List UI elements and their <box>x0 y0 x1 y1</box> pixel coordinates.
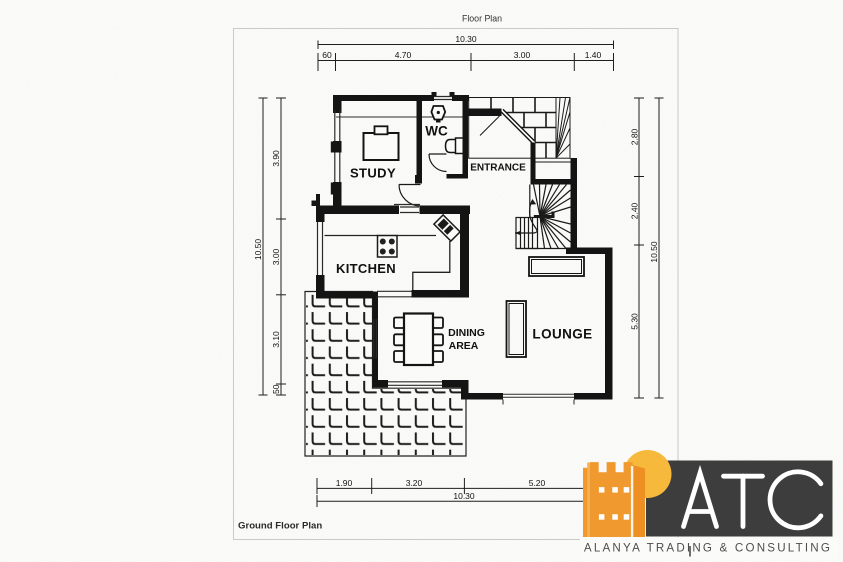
svg-text:4.70: 4.70 <box>395 50 412 60</box>
svg-text:10.30: 10.30 <box>453 491 475 501</box>
svg-text:3.00: 3.00 <box>271 248 281 265</box>
svg-text:1.90: 1.90 <box>336 478 353 488</box>
svg-text:10.30: 10.30 <box>455 34 477 44</box>
svg-text:5.30: 5.30 <box>630 313 640 330</box>
svg-text:5.20: 5.20 <box>529 478 546 488</box>
svg-text:Floor Plan: Floor Plan <box>462 14 502 24</box>
svg-text:2.40: 2.40 <box>630 202 640 219</box>
svg-text:ALANYA TRADING & CONSULTING: ALANYA TRADING & CONSULTING <box>584 542 832 555</box>
svg-text:WC: WC <box>425 124 448 139</box>
svg-text:ENTRANCE: ENTRANCE <box>470 163 526 174</box>
svg-text:Ground Floor Plan: Ground Floor Plan <box>238 521 322 532</box>
svg-text:LOUNGE: LOUNGE <box>532 327 592 342</box>
svg-text:DINING: DINING <box>448 327 485 339</box>
svg-text:3.20: 3.20 <box>406 478 423 488</box>
svg-text:10.50: 10.50 <box>649 241 659 263</box>
svg-text:2.80: 2.80 <box>630 128 640 145</box>
svg-text:3.00: 3.00 <box>514 50 531 60</box>
svg-text:10.50: 10.50 <box>253 239 263 261</box>
svg-text:KITCHEN: KITCHEN <box>336 261 396 276</box>
svg-text:STUDY: STUDY <box>350 166 396 181</box>
svg-text:50: 50 <box>271 384 281 394</box>
svg-text:1.40: 1.40 <box>585 50 602 60</box>
svg-text:60: 60 <box>322 50 332 60</box>
svg-text:AREA: AREA <box>449 340 479 352</box>
svg-text:3.10: 3.10 <box>271 331 281 348</box>
svg-text:3.90: 3.90 <box>271 150 281 167</box>
